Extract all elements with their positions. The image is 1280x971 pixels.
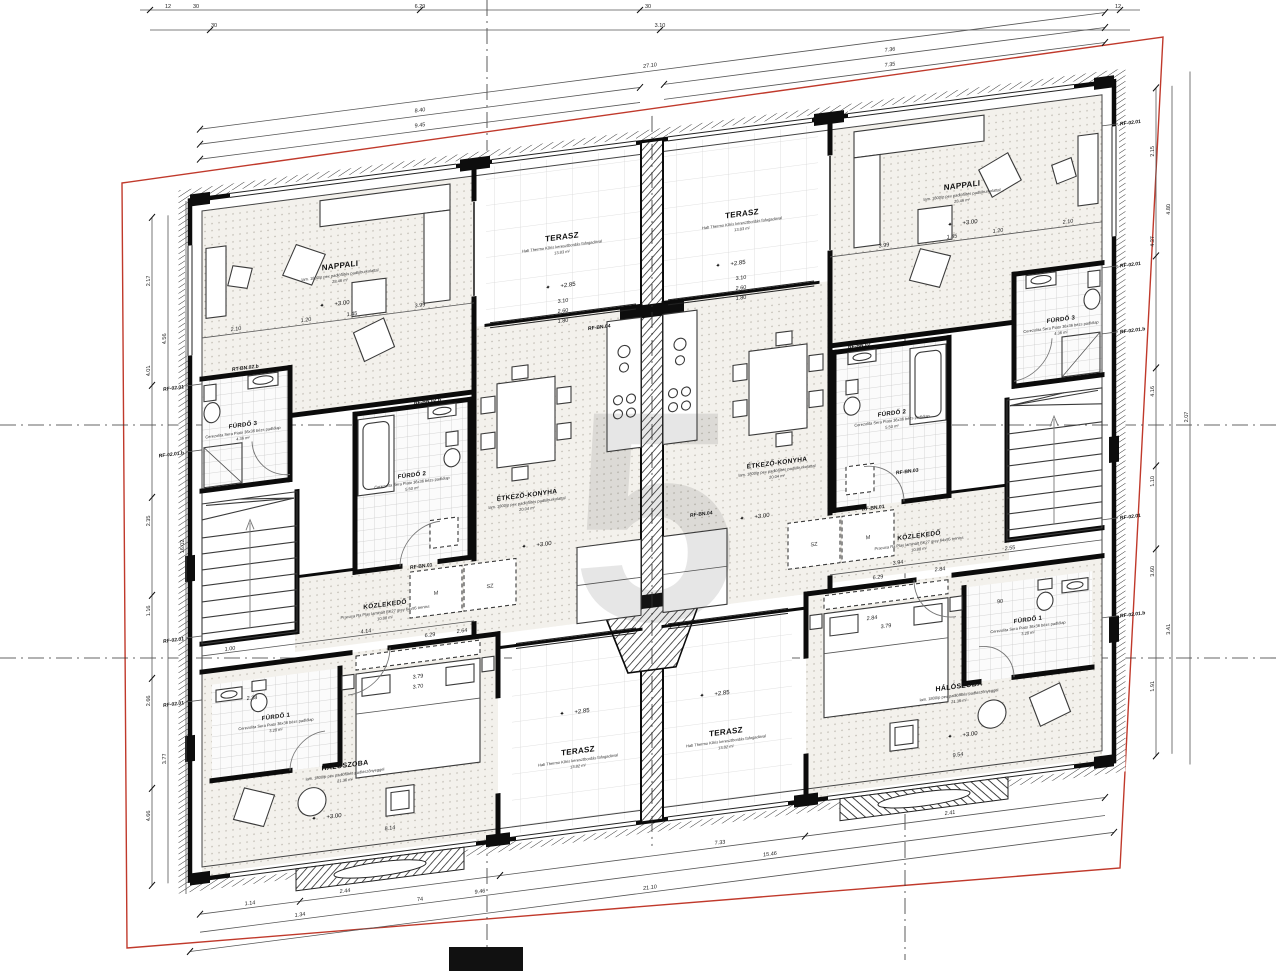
svg-text:1.14: 1.14 [245,900,256,907]
svg-text:4.01: 4.01 [146,365,152,376]
svg-text:9.45: 9.45 [415,122,426,129]
svg-text:2.84: 2.84 [935,566,946,573]
wardrobe-m-right: M [866,535,871,542]
dim-top-outer-4: 12 [1115,4,1121,10]
svg-text:2.15: 2.15 [1150,146,1156,157]
dim-top-outer-2: 6.29 [415,4,426,10]
svg-text:15.46: 15.46 [763,851,777,859]
svg-text:2.17: 2.17 [146,275,152,286]
level-marker-icon: ✦ [521,543,526,551]
svg-text:1.10: 1.10 [1150,476,1156,487]
dim-top-outer-1: 30 [193,4,199,10]
svg-text:2.44: 2.44 [340,888,351,895]
svg-text:2.41: 2.41 [945,810,956,817]
level-marker-icon: ✦ [739,515,744,523]
watermark: 5 [572,348,739,684]
wardrobe-m-left: M [434,590,439,597]
svg-text:3.60: 3.60 [1150,566,1156,577]
svg-text:4.80: 4.80 [1166,203,1172,214]
level-marker-icon: ✦ [715,262,720,270]
level-marker-icon: ✦ [559,710,564,718]
bottom-logo-block [449,947,523,971]
dim-top-outer-3: 30 [645,4,651,10]
svg-text:74: 74 [417,896,423,903]
dimension-chain-top-outer: 12 30 6.29 30 12 3.10 30 [140,4,1140,33]
svg-text:1.16: 1.16 [146,605,152,616]
svg-text:2.07: 2.07 [1184,411,1190,422]
level-marker-icon: ✦ [545,284,550,292]
svg-text:4.56: 4.56 [162,333,168,344]
svg-text:1.91: 1.91 [1150,681,1156,692]
svg-text:4.66: 4.66 [146,810,152,821]
svg-text:4.16: 4.16 [1150,386,1156,397]
svg-text:6.29: 6.29 [425,632,436,639]
dim-top-outer-5: 3.10 [655,23,666,29]
svg-text:2.35: 2.35 [146,515,152,526]
level-marker-icon: ✦ [311,815,316,823]
svg-text:3.41: 3.41 [1166,623,1172,634]
dim-top-outer-0: 12 [165,4,171,10]
level-marker-icon: ✦ [319,302,324,310]
svg-text:90: 90 [997,599,1003,606]
floor-plan-sheet: 12 30 6.29 30 12 3.10 30 [0,0,1280,971]
svg-text:4.27: 4.27 [1150,236,1156,247]
svg-text:7.33: 7.33 [715,839,726,846]
svg-text:2.66: 2.66 [146,695,152,706]
svg-text:7.36: 7.36 [885,47,896,54]
floor-plan-drawing: 12 30 6.29 30 12 3.10 30 [0,0,1280,971]
wardrobe-sz-right: SZ [810,541,818,548]
wardrobe-sz-left: SZ [486,583,494,590]
dim-top-outer-6: 30 [211,23,217,29]
svg-text:1.34: 1.34 [295,912,306,919]
svg-text:8.40: 8.40 [415,107,426,114]
svg-text:9.46: 9.46 [475,888,486,895]
svg-text:2.64: 2.64 [457,628,468,635]
svg-text:6.29: 6.29 [873,574,884,581]
svg-text:27.10: 27.10 [643,62,657,70]
level-marker-icon: ✦ [947,733,952,741]
level-marker-icon: ✦ [947,221,952,229]
svg-text:16.02: 16.02 [180,539,186,554]
level-marker-icon: ✦ [699,692,704,700]
svg-text:21.10: 21.10 [643,884,657,892]
svg-text:3.77: 3.77 [162,753,168,764]
staircase [202,492,297,644]
svg-text:7.35: 7.35 [885,62,896,69]
